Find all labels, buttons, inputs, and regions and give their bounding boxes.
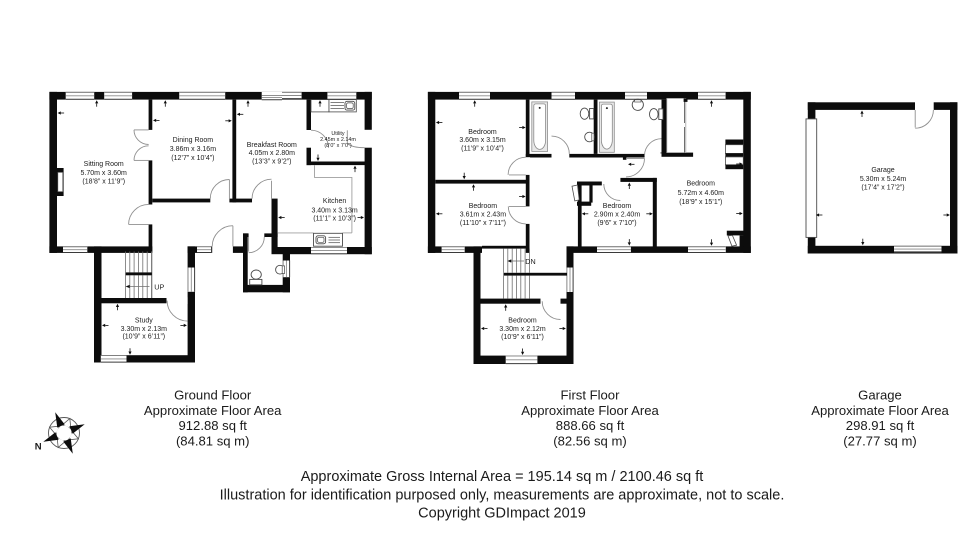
svg-text:2.45m x 2.14m: 2.45m x 2.14m xyxy=(320,137,356,143)
svg-text:Bedroom: Bedroom xyxy=(508,317,537,324)
svg-text:Approximate Floor Area: Approximate Floor Area xyxy=(811,403,949,418)
svg-text:3.30m x 2.13m: 3.30m x 2.13m xyxy=(121,326,167,333)
svg-text:3.30m x 2.12m: 3.30m x 2.12m xyxy=(499,326,545,333)
svg-text:Kitchen: Kitchen xyxy=(323,198,346,205)
svg-text:(8’0” x 7’0”): (8’0” x 7’0”) xyxy=(324,143,351,149)
svg-text:Garage: Garage xyxy=(871,167,894,174)
svg-text:888.66 sq ft: 888.66 sq ft xyxy=(556,418,625,433)
svg-text:Bedroom: Bedroom xyxy=(469,203,498,210)
svg-text:(10’9” x 6’11”): (10’9” x 6’11”) xyxy=(122,334,165,341)
svg-text:N: N xyxy=(35,442,42,453)
svg-text:Garage: Garage xyxy=(858,387,902,402)
svg-text:Bedroom: Bedroom xyxy=(603,203,632,210)
svg-text:Illustration for identificatio: Illustration for identification purposed… xyxy=(220,487,785,503)
svg-text:Bedroom: Bedroom xyxy=(687,181,716,188)
svg-text:UP: UP xyxy=(154,282,164,291)
svg-text:(27.77 sq m): (27.77 sq m) xyxy=(843,434,917,449)
svg-text:(18’8” x 11’9”): (18’8” x 11’9”) xyxy=(82,178,125,185)
svg-text:3.61m x 2.43m: 3.61m x 2.43m xyxy=(460,211,506,218)
svg-text:3.40m x 3.13m: 3.40m x 3.13m xyxy=(311,207,357,214)
svg-text:(11’1” x 10’3”): (11’1” x 10’3”) xyxy=(313,216,356,223)
svg-text:2.90m x 2.40m: 2.90m x 2.40m xyxy=(594,211,640,218)
svg-text:Dining Room: Dining Room xyxy=(173,137,214,144)
svg-text:Approximate Gross Internal Are: Approximate Gross Internal Area = 195.14… xyxy=(301,469,704,485)
svg-text:912.88 sq ft: 912.88 sq ft xyxy=(178,418,247,433)
svg-text:Ground Floor: Ground Floor xyxy=(174,387,252,402)
svg-text:(18’9” x 15’1”): (18’9” x 15’1”) xyxy=(679,199,722,206)
svg-text:(11’9” x 10’4”): (11’9” x 10’4”) xyxy=(461,145,504,152)
svg-text:298.91 sq ft: 298.91 sq ft xyxy=(846,418,915,433)
svg-text:(11’10” x 7’11”): (11’10” x 7’11”) xyxy=(460,220,506,227)
svg-text:(13’3” x 9’2”): (13’3” x 9’2”) xyxy=(252,159,291,166)
svg-text:3.86m x 3.16m: 3.86m x 3.16m xyxy=(170,146,216,153)
svg-text:(84.81 sq m): (84.81 sq m) xyxy=(176,434,250,449)
svg-text:DN: DN xyxy=(525,257,535,266)
svg-text:5.72m x 4.60m: 5.72m x 4.60m xyxy=(678,190,724,197)
svg-text:Copyright GDImpact 2019: Copyright GDImpact 2019 xyxy=(418,505,586,521)
svg-text:(12’7” x 10’4”): (12’7” x 10’4”) xyxy=(171,155,214,162)
svg-text:5.70m x 3.60m: 5.70m x 3.60m xyxy=(81,170,127,177)
svg-text:5.30m x 5.24m: 5.30m x 5.24m xyxy=(860,176,906,183)
svg-text:Study: Study xyxy=(135,318,153,325)
svg-text:(17’4” x 17’2”): (17’4” x 17’2”) xyxy=(861,185,904,192)
svg-text:(10’9” x 6’11”): (10’9” x 6’11”) xyxy=(501,334,544,341)
svg-text:Approximate Floor Area: Approximate Floor Area xyxy=(144,403,282,418)
svg-text:Sitting Room: Sitting Room xyxy=(84,161,124,168)
svg-text:(9’6” x 7’10”): (9’6” x 7’10”) xyxy=(597,220,636,227)
svg-text:Bedroom: Bedroom xyxy=(468,129,497,136)
svg-text:(82.56 sq m): (82.56 sq m) xyxy=(553,434,627,449)
svg-text:First Floor: First Floor xyxy=(561,387,621,402)
svg-text:Breakfast Room: Breakfast Room xyxy=(247,142,297,149)
svg-text:3.60m x 3.15m: 3.60m x 3.15m xyxy=(459,137,505,144)
svg-text:4.05m x 2.80m: 4.05m x 2.80m xyxy=(249,150,295,157)
svg-text:Approximate Floor Area: Approximate Floor Area xyxy=(521,403,659,418)
